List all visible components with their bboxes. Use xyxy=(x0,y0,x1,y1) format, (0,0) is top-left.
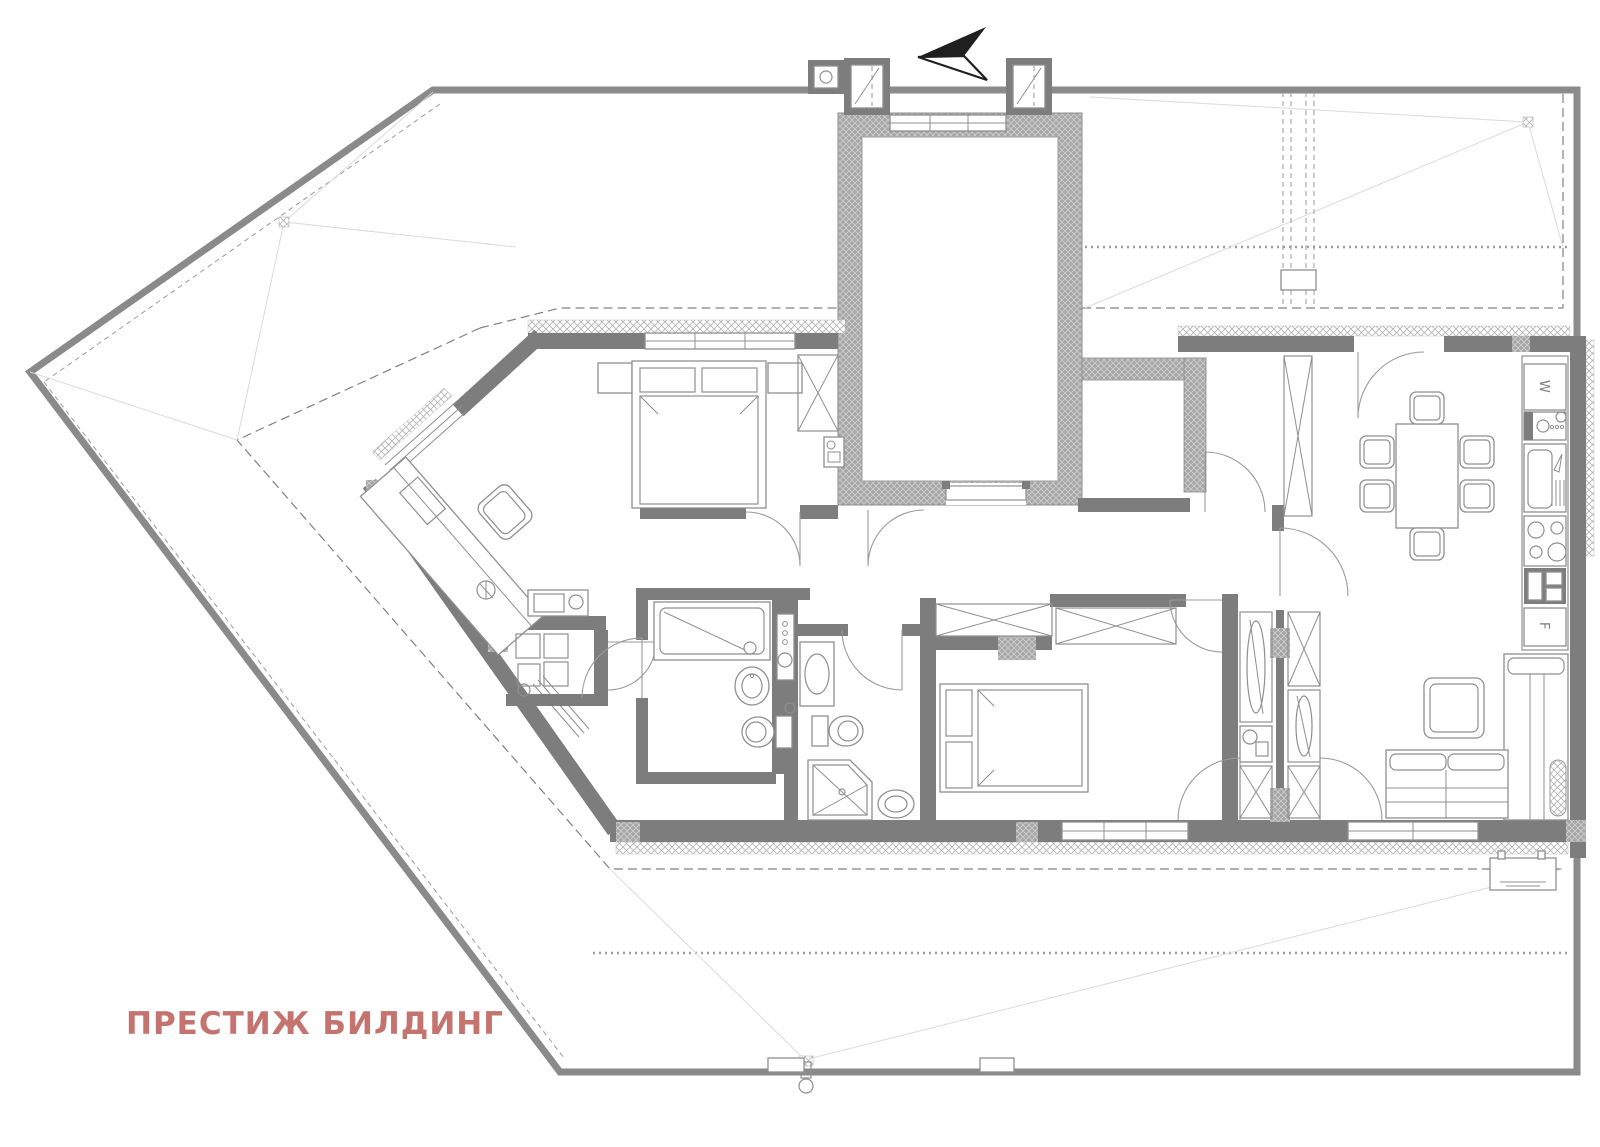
shower-tray xyxy=(654,602,770,660)
dining-chair xyxy=(1460,436,1494,468)
washbasin xyxy=(878,790,914,818)
living-window xyxy=(1348,822,1478,840)
coffee-table xyxy=(1424,678,1484,738)
floor-plan-page: W F xyxy=(0,0,1600,1147)
washbasin xyxy=(735,667,769,705)
washer-label: W xyxy=(1536,380,1551,393)
ridge-marker xyxy=(1523,117,1533,127)
parapet-detail xyxy=(980,1058,1014,1072)
washing-machine: W xyxy=(1524,364,1566,410)
stove xyxy=(1524,516,1566,566)
dining-chair xyxy=(1410,528,1444,560)
sink-cabinet xyxy=(1240,726,1272,762)
bedroom2-window xyxy=(1062,822,1188,840)
nightstand xyxy=(768,363,802,393)
cabinet xyxy=(1524,568,1566,604)
brand-title: ПРЕСТИЖ БИЛДИНГ xyxy=(126,1006,504,1042)
terrace-outline xyxy=(30,90,1577,1072)
double-bed xyxy=(632,361,766,508)
ridge-marker xyxy=(279,217,289,227)
dining-chair xyxy=(1360,436,1394,468)
kitchen-sink xyxy=(1524,444,1566,512)
toilet xyxy=(812,716,863,746)
north-arrow-icon xyxy=(918,27,987,80)
floor-plan-drawing: W F xyxy=(0,0,1600,1147)
dining-chair xyxy=(1360,480,1394,512)
sink-cabinet xyxy=(800,642,834,706)
toilet xyxy=(742,716,792,748)
dining-chair xyxy=(1460,480,1494,512)
dining-chair xyxy=(1410,392,1444,424)
fridge-label: F xyxy=(1536,622,1551,629)
counter-sink-top xyxy=(1524,412,1566,440)
sofa-armrest xyxy=(1550,760,1566,816)
bedroom1-window xyxy=(645,333,795,349)
dining-table xyxy=(1396,424,1458,528)
parapet-detail xyxy=(768,1058,804,1072)
radiator xyxy=(824,437,844,467)
double-bed xyxy=(940,684,1088,792)
fridge: F xyxy=(1524,608,1566,646)
nightstand xyxy=(598,363,632,393)
stairwell-shaft xyxy=(838,113,1082,505)
